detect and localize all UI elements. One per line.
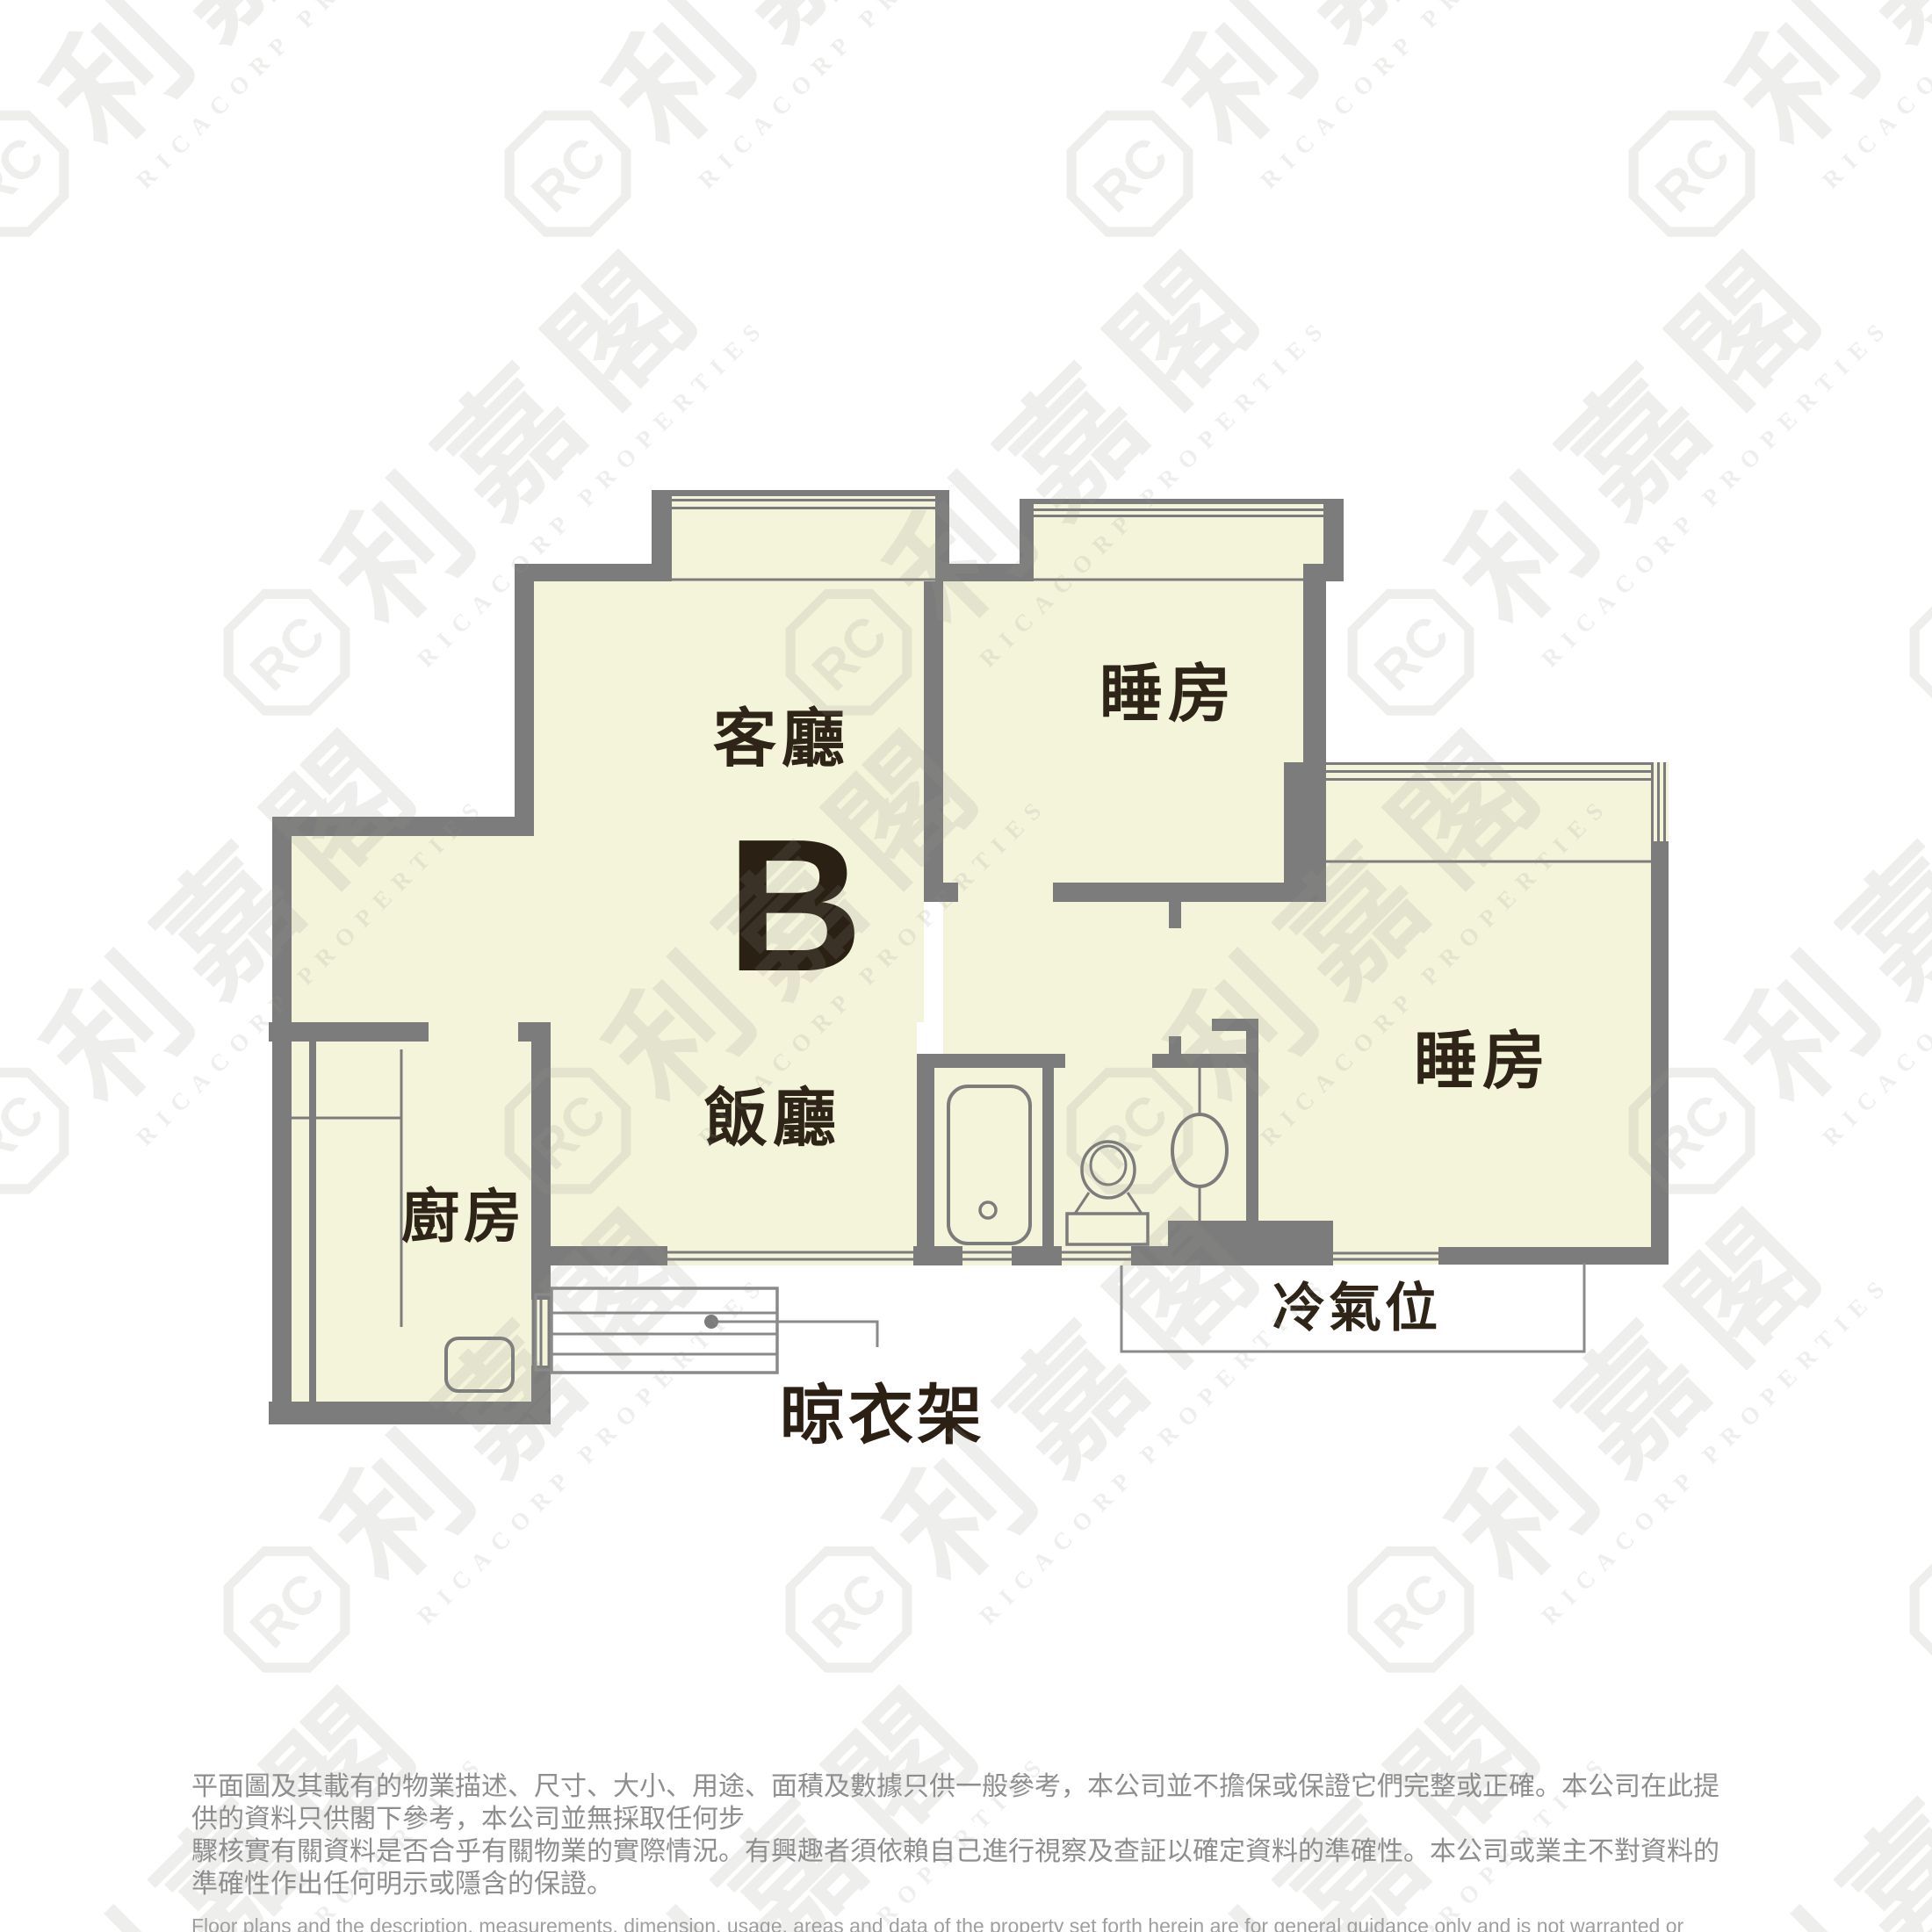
living-room-label: 客廳 <box>713 704 850 775</box>
window-glazing-line <box>672 507 935 509</box>
wall-segment <box>1053 883 1326 902</box>
drying-rack-frame <box>551 1288 777 1373</box>
toilet-cistern-icon <box>1067 1214 1148 1244</box>
bedroom-right-window <box>1333 1247 1438 1265</box>
wall-segment <box>917 1054 934 1265</box>
bathtub-room-window <box>962 1246 1012 1265</box>
drying-rack-pivot-dot <box>704 1315 718 1329</box>
wall-stub <box>1212 1019 1246 1031</box>
disclaimer-zh-line2: 驟核實有關資料是否合乎有關物業的實際情況。有興趣者須依賴自己進行視察及查証以確定… <box>191 1835 1737 1900</box>
kitchen-door-gap <box>429 1022 518 1042</box>
window-glazing-line <box>1663 762 1666 841</box>
bedroom-right-bay-floor <box>1326 762 1651 863</box>
wall-segment <box>1131 1246 1168 1265</box>
dining-room-label: 飯廳 <box>704 1084 841 1154</box>
floor-plan-page: 客廳 睡房 睡房 飯廳 廚房 B 晾衣架 冷氣位 RC 利嘉閣 RICACORP… <box>0 0 1932 1932</box>
wall-segment <box>652 490 949 496</box>
wall-segment <box>272 817 534 836</box>
bathroom-door-gap <box>1065 1054 1152 1071</box>
wall-segment <box>924 883 958 902</box>
wall-segment <box>1012 1246 1062 1265</box>
toilet-room-window <box>1062 1246 1131 1265</box>
corridor-floor <box>1258 1054 1333 1221</box>
disclaimer-en-line1: Floor plans and the description, measure… <box>191 1914 1737 1932</box>
wall-segment <box>1438 1247 1669 1265</box>
drying-rack-label: 晾衣架 <box>780 1379 985 1452</box>
ac-position-label: 冷氣位 <box>1272 1279 1441 1337</box>
window-glazing-line <box>1651 762 1654 841</box>
disclaimer-block: 平面圖及其載有的物業描述、尺寸、大小、用途、面積及數據只供一般參考，本公司並不擔… <box>191 1770 1737 1932</box>
wall-segment <box>272 817 292 1424</box>
window-glazing-line <box>1034 515 1323 517</box>
kitchen-label: 廚房 <box>401 1184 526 1249</box>
bedroom-right-label: 睡房 <box>1414 1027 1551 1097</box>
window-glazing-line <box>1034 508 1323 511</box>
wall-segment <box>309 1042 316 1405</box>
wall-stub <box>1169 902 1181 928</box>
window-glazing-line <box>672 499 935 501</box>
wall-segment <box>1042 1068 1054 1265</box>
wall-segment <box>1284 762 1326 883</box>
wall-segment <box>515 564 534 836</box>
wall-segment <box>1651 841 1669 1265</box>
wall-segment <box>515 564 652 581</box>
wall-segment <box>1246 1019 1258 1224</box>
hallway-floor <box>943 902 1333 1054</box>
wall-segment <box>935 490 949 581</box>
wash-basin-icon <box>1172 1114 1227 1186</box>
wall-segment <box>1020 499 1034 581</box>
wall-segment <box>1323 499 1344 581</box>
wall-segment <box>931 1054 1065 1068</box>
wall-segment <box>269 1402 551 1424</box>
room-fills <box>290 496 1669 1405</box>
window-glazing-line <box>1326 762 1651 765</box>
kitchen-side-strip <box>290 1042 309 1405</box>
wall-segment <box>1168 1221 1333 1265</box>
floor-plan-drawing: 客廳 睡房 睡房 飯廳 廚房 B 晾衣架 冷氣位 <box>0 0 1932 1932</box>
window-glazing-line <box>1657 762 1660 841</box>
wall-segment <box>531 1246 667 1265</box>
window-glazing-line <box>1326 770 1651 773</box>
dining-window <box>667 1246 913 1265</box>
disclaimer-zh-line1: 平面圖及其載有的物業描述、尺寸、大小、用途、面積及數據只供一般參考，本公司並不擔… <box>191 1770 1737 1835</box>
unit-label: B <box>726 799 862 1011</box>
window-glazing-line <box>1326 778 1651 781</box>
bedroom-top-label: 睡房 <box>1099 660 1236 730</box>
wall-segment <box>1152 1054 1258 1068</box>
wall-segment <box>949 564 1020 581</box>
wall-segment <box>1020 499 1344 504</box>
bedroom-top-floor <box>943 581 1303 883</box>
wall-segment <box>924 581 943 902</box>
wall-segment <box>269 1022 429 1042</box>
bedroom-top-door-gap <box>958 883 1053 902</box>
wall-segment <box>652 490 672 581</box>
wall-segment <box>913 1246 962 1265</box>
wall-stub <box>1169 1036 1181 1055</box>
